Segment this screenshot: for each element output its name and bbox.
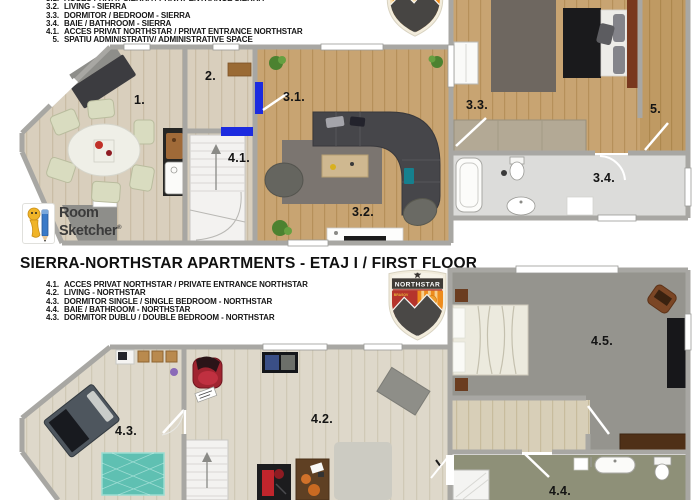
- bathtub: [456, 158, 482, 212]
- sierra-badge: [378, 0, 452, 38]
- red-armchair: [193, 356, 222, 388]
- room-label-4-3: 4.3.: [115, 424, 137, 438]
- room-label-3-1: 3.1.: [283, 90, 305, 104]
- bedroom-rug: [491, 0, 556, 92]
- drain: [501, 170, 507, 176]
- teal-rug: [102, 453, 164, 495]
- roomsketcher-logo: Room Sketcher®: [22, 203, 121, 244]
- toilet: [510, 157, 524, 180]
- ottoman: [265, 163, 303, 197]
- room-label-3-4: 3.4.: [593, 171, 615, 185]
- bathroom-sink-2: [591, 457, 635, 473]
- doormat: [228, 63, 251, 76]
- legend-item: 5. SPATIU ADMINISTRATIV/ ADMINISTRATIVE …: [40, 36, 303, 44]
- room-label-4-5: 4.5.: [591, 334, 613, 348]
- staircase-first: [186, 440, 228, 500]
- room-label-2: 2.: [205, 69, 216, 83]
- black-wardrobe: [667, 318, 686, 388]
- door-blue: [221, 127, 253, 136]
- room-label-3-3: 3.3.: [466, 98, 488, 112]
- roomsketcher-wordmark: Room Sketcher®: [59, 206, 121, 239]
- room-label-1: 1.: [134, 93, 145, 107]
- room-label-4-2: 4.2.: [311, 412, 333, 426]
- dresser: [620, 434, 686, 450]
- first-floor-plan: [0, 255, 700, 500]
- bathroom-sink: [507, 197, 535, 215]
- room-label-3-2: 3.2.: [352, 205, 374, 219]
- room-label-4-1: 4.1.: [228, 151, 250, 165]
- laundry-basket: [574, 458, 588, 470]
- bath-mat: [567, 197, 593, 215]
- shower: [453, 470, 489, 500]
- black-cabinet: [257, 464, 291, 500]
- stool: [170, 368, 178, 376]
- room-label-5: 5.: [650, 102, 661, 116]
- roomsketcher-mascot-icon: [22, 203, 55, 244]
- wardrobe: [454, 120, 586, 151]
- hallway-floor: [452, 400, 590, 452]
- gray-rug: [334, 442, 392, 500]
- floorplan-page: 1. 2. 3.1. 4.1. 3.2. 3.3. 5. 3.4. 3.1. A…: [0, 0, 700, 500]
- ground-floor-legend: 3.1. ACCES PRIVAT SIERRA / PRIVAT ENTRAN…: [40, 0, 303, 45]
- double-bed: [563, 0, 638, 88]
- room-5-floor: [640, 0, 688, 153]
- room-label-4-4: 4.4.: [549, 484, 571, 498]
- media-shelf: [327, 228, 403, 241]
- coffee-table-2: [296, 459, 329, 500]
- coffee-table: [322, 155, 368, 177]
- desk: [116, 350, 177, 364]
- door-blue: [255, 82, 263, 114]
- wall-art: [262, 352, 298, 373]
